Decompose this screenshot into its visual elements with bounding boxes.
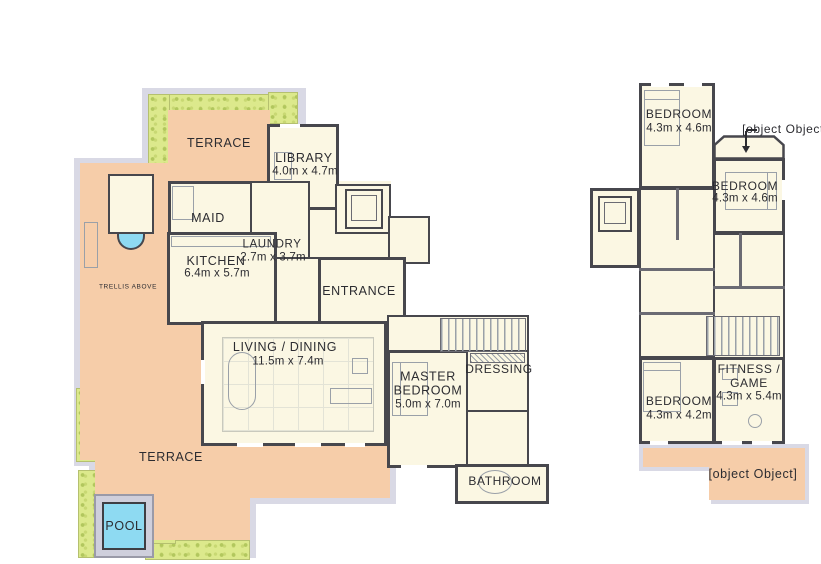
- bed-pillow: [644, 90, 680, 100]
- floor-plan-image: TERRACE LIBRARY 4.0m x 4.7m MAID KITCHEN…: [0, 0, 821, 564]
- partition-wall: [676, 188, 679, 240]
- partition-wall: [639, 268, 715, 271]
- room-label-balcony-bottom: [object Object]: [709, 467, 798, 481]
- room-label-fitness-game: FITNESS / GAME: [709, 363, 789, 391]
- bed-pillow: [643, 362, 681, 371]
- room-dims-bedroom-bottom: 4.3m x 4.2m: [646, 409, 711, 422]
- upper-floor-plan: [object Object] BEDROOM 4.3m x 4.6m BEDR…: [0, 0, 821, 564]
- partition-wall: [639, 312, 715, 315]
- room-dims-fitness-game: 4.3m x 5.4m: [716, 390, 781, 403]
- window: [650, 441, 668, 445]
- elevator-icon: [604, 202, 626, 224]
- window: [651, 83, 669, 87]
- room-label-bedroom-top: BEDROOM: [646, 108, 712, 122]
- room-dims-bedroom-right: 4.3m x 4.6m: [712, 192, 777, 205]
- window: [722, 441, 742, 445]
- window: [782, 180, 786, 200]
- gym-equipment-icon: [748, 414, 762, 428]
- window: [684, 83, 702, 87]
- room-label-bedroom-bottom: BEDROOM: [646, 395, 712, 409]
- partition-wall: [713, 286, 785, 289]
- room-dims-bedroom-top: 4.3m x 4.6m: [646, 122, 711, 135]
- arrow-down-icon: [742, 146, 750, 153]
- stairs-icon: [706, 316, 780, 356]
- label-balcony-top: [object Object]: [742, 123, 821, 137]
- window: [752, 441, 772, 445]
- partition-wall: [739, 233, 742, 288]
